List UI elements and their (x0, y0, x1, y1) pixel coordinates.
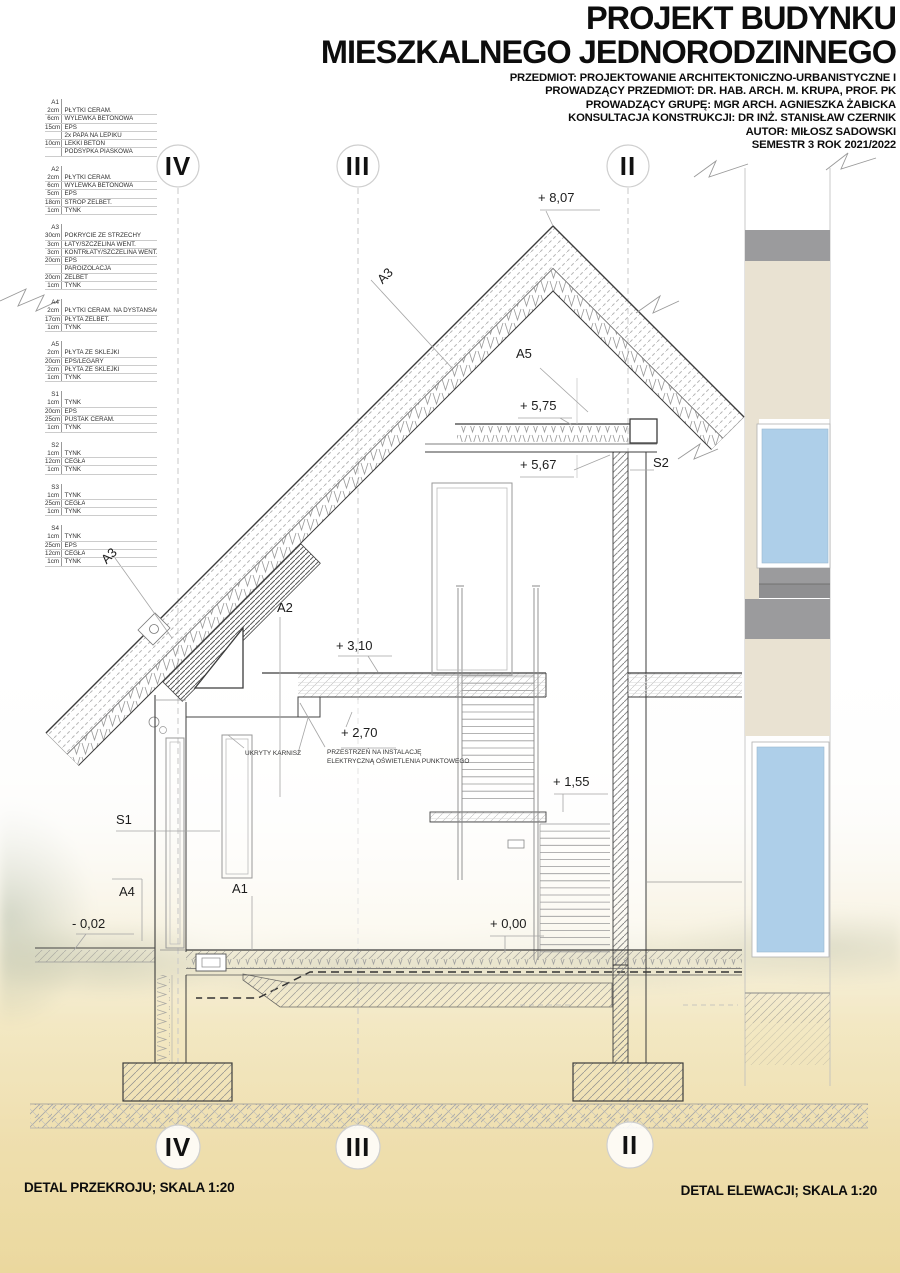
attic-insulation (457, 426, 628, 442)
legend-row: 1cmTYNK (45, 207, 157, 215)
component-label-a5: A5 (516, 346, 532, 361)
legend-table-A5: A52cmPŁYTA ZE SKLEJKI20cmEPS/LEGARY2cmPŁ… (45, 341, 157, 382)
facade-gray-step1 (759, 568, 830, 584)
facade-gray-band-top (745, 230, 830, 261)
legend-table-id: S2 (45, 442, 62, 450)
legend-row: 3cmŁATY/SZCZELINA WENT. (45, 241, 157, 249)
subtitle-line: PRZEDMIOT: PROJEKTOWANIE ARCHITEKTONICZN… (321, 72, 896, 85)
facade-gray-band-mid (745, 599, 830, 639)
legend-row: 1cmTYNK (45, 508, 157, 516)
legend-row: 15cmEPS (45, 124, 157, 132)
project-subtitles: PRZEDMIOT: PROJEKTOWANIE ARCHITEKTONICZN… (321, 72, 896, 152)
legend-row: 2cmPŁYTKI CERAM. NA DYSTANSACH (45, 307, 157, 315)
ground-slab (30, 948, 868, 1128)
hidden-cornice-box (298, 697, 320, 717)
legend-table-S4: S41cmTYNK25cmEPS12cmCEGŁA1cmTYNK (45, 525, 157, 566)
legend-row: 1cmTYNK (45, 374, 157, 382)
facade-foundation-hatch (745, 993, 830, 1023)
legend-row: PAROIZOLACJA (45, 265, 157, 273)
legend-table-id: S3 (45, 484, 62, 492)
edge-beam (196, 954, 226, 971)
component-label-s1: S1 (116, 812, 132, 827)
component-label-a1: A1 (232, 881, 248, 896)
legend-table-id: A4 (45, 299, 62, 307)
marker-top-III: III (328, 151, 388, 181)
facade-beige-band-mid (745, 639, 830, 736)
legend-table-id: S4 (45, 525, 62, 533)
marker-bottom-II: II (600, 1130, 660, 1160)
level-label-000: + 0,00 (490, 916, 527, 931)
legend-table-id: A2 (45, 166, 62, 174)
legend-row: 1cmTYNK (45, 466, 157, 474)
legend-table-id: S1 (45, 391, 62, 399)
legend-row: 6cmWYLEWKA BETONOWA (45, 115, 157, 123)
legend-row: 1cmTYNK (45, 282, 157, 290)
level-label-270: + 2,70 (341, 725, 378, 740)
legend-row: 20cmEPS (45, 408, 157, 416)
legend-table-S3: S31cmTYNK25cmCEGŁA1cmTYNK (45, 484, 157, 517)
legend-row: 3cmKONTRŁATY/SZCZELINA WENT. (45, 249, 157, 257)
legend-row: 25cmPUSTAK CERAM. (45, 416, 157, 424)
window-left-wall (166, 738, 184, 948)
stair-landing (430, 812, 546, 822)
footer-label-elevation: DETAL ELEWACJI; SKALA 1:20 (681, 1183, 877, 1198)
legend-row: 18cmSTROP ŻELBET. (45, 199, 157, 207)
component-label-a2: A2 (277, 600, 293, 615)
legend-row: PODSYPKA PIASKOWA (45, 148, 157, 156)
marker-top-II: II (598, 151, 658, 181)
subtitle-line: KONSULTACJA KONSTRUKCJI: DR INŻ. STANISŁ… (321, 112, 896, 125)
window-glass-lower (757, 747, 824, 952)
window-glass-upper (762, 429, 828, 563)
note-hidden-cornice: UKRYTY KARNISZ (245, 749, 301, 758)
component-label-s2: S2 (653, 455, 669, 470)
ridge-beam (630, 419, 657, 443)
legend-row: 25cmEPS (45, 542, 157, 550)
legend-row: 20cmEPS (45, 257, 157, 265)
deep-slab (243, 974, 612, 1007)
legend-row: 1cmTYNK (45, 324, 157, 332)
legend-row: 5cmEPS (45, 190, 157, 198)
legend-row: 1cmTYNK (45, 399, 157, 407)
legend-table-id: A1 (45, 99, 62, 107)
drawing-sheet: PROJEKT BUDYNKU MIESZKALNEGO JEDNORODZIN… (0, 0, 900, 1273)
interior-mask (186, 700, 646, 950)
level-label-minus002: - 0,02 (72, 916, 105, 931)
legend-row: 1cmTYNK (45, 424, 157, 432)
foundation-wall-right (613, 965, 628, 1063)
facade-gray-step2 (759, 584, 830, 598)
project-title-line1: PROJEKT BUDYNKU (321, 1, 896, 35)
footer-label-section: DETAL PRZEKROJU; SKALA 1:20 (24, 1180, 234, 1195)
legend-table-id: A5 (45, 341, 62, 349)
door-frame-upper (432, 483, 512, 675)
subtitle-line: PROWADZĄCY PRZEDMIOT: DR. HAB. ARCH. M. … (321, 85, 896, 98)
legend-row: 12cmCEGŁA (45, 458, 157, 466)
subtitle-line: AUTOR: MIŁOSZ SADOWSKI (321, 126, 896, 139)
marker-bottom-III: III (328, 1132, 388, 1162)
subtitle-line: PROWADZĄCY GRUPĘ: MGR ARCH. AGNIESZKA ŻA… (321, 99, 896, 112)
legend-table-S2: S21cmTYNK12cmCEGŁA1cmTYNK (45, 442, 157, 475)
component-label-a4: A4 (119, 884, 135, 899)
facade-beige-band-top (745, 261, 830, 419)
marker-top-IV: IV (148, 151, 208, 181)
eave-gutter (149, 717, 159, 727)
legend-row: 25cmCEGŁA (45, 500, 157, 508)
level-label-567: + 5,67 (520, 457, 557, 472)
legend-row: 1cmTYNK (45, 450, 157, 458)
legend-table-A2: A22cmPŁYTKI CERAM.6cmWYLEWKA BETONOWA5cm… (45, 166, 157, 215)
level-label-807: + 8,07 (538, 190, 575, 205)
legend-table-A3: A330cmPOKRYCIE ZE STRZECHY3cmŁATY/SZCZEL… (45, 224, 157, 290)
ground-hatch-band (30, 1104, 868, 1128)
legend-row: 1cmTYNK (45, 533, 157, 541)
note-lighting-space: PRZESTRZEŃ NA INSTALACJĘ ELEKTRYCZNĄ OŚW… (327, 748, 469, 766)
legend-table-S1: S11cmTYNK20cmEPS25cmPUSTAK CERAM.1cmTYNK (45, 391, 157, 432)
legend-row: 1cmTYNK (45, 492, 157, 500)
terrace-slab (35, 950, 155, 962)
footing-left (123, 1063, 232, 1101)
legend-row: 2cmPŁYTKI CERAM. (45, 107, 157, 115)
legend-table-id: A3 (45, 224, 62, 232)
legend-row: 10cmLEKKI BETON (45, 140, 157, 148)
legend-row: 2cmPŁYTA ZE SKLEJKI (45, 349, 157, 357)
legend-row: 20cmEPS/LEGARY (45, 358, 157, 366)
legend-table-A4: A42cmPŁYTKI CERAM. NA DYSTANSACH17cmPŁYT… (45, 299, 157, 332)
level-label-575: + 5,75 (520, 398, 557, 413)
legend-row: 17cmPŁYTA ŻELBET. (45, 316, 157, 324)
legend-row: 2cmPŁYTA ZE SKLEJKI (45, 366, 157, 374)
legend-row: 20cmŻELBET (45, 274, 157, 282)
level-label-310: + 3,10 (336, 638, 373, 653)
facade-detail-strip (745, 168, 830, 1086)
legend-row: 30cmPOKRYCIE ZE STRZECHY (45, 232, 157, 240)
note-lighting-line2: ELEKTRYCZNĄ OŚWIETLENIA PUNKTOWEGO (327, 757, 469, 766)
marker-bottom-IV: IV (148, 1132, 208, 1162)
project-title-line2: MIESZKALNEGO JEDNORODZINNEGO (321, 35, 896, 69)
legend-row: 2cmPŁYTKI CERAM. (45, 174, 157, 182)
legend-table-A1: A12cmPŁYTKI CERAM.6cmWYLEWKA BETONOWA15c… (45, 99, 157, 157)
wall-s2 (613, 452, 628, 965)
legend-row: 2x PAPA NA LEPIKU (45, 132, 157, 140)
level-label-155: + 1,55 (553, 774, 590, 789)
footing-right (573, 1063, 683, 1101)
title-block: PROJEKT BUDYNKU MIESZKALNEGO JEDNORODZIN… (321, 1, 896, 152)
legend: A12cmPŁYTKI CERAM.6cmWYLEWKA BETONOWA15c… (45, 99, 157, 576)
note-lighting-line1: PRZESTRZEŃ NA INSTALACJĘ (327, 748, 469, 757)
legend-row: 6cmWYLEWKA BETONOWA (45, 182, 157, 190)
